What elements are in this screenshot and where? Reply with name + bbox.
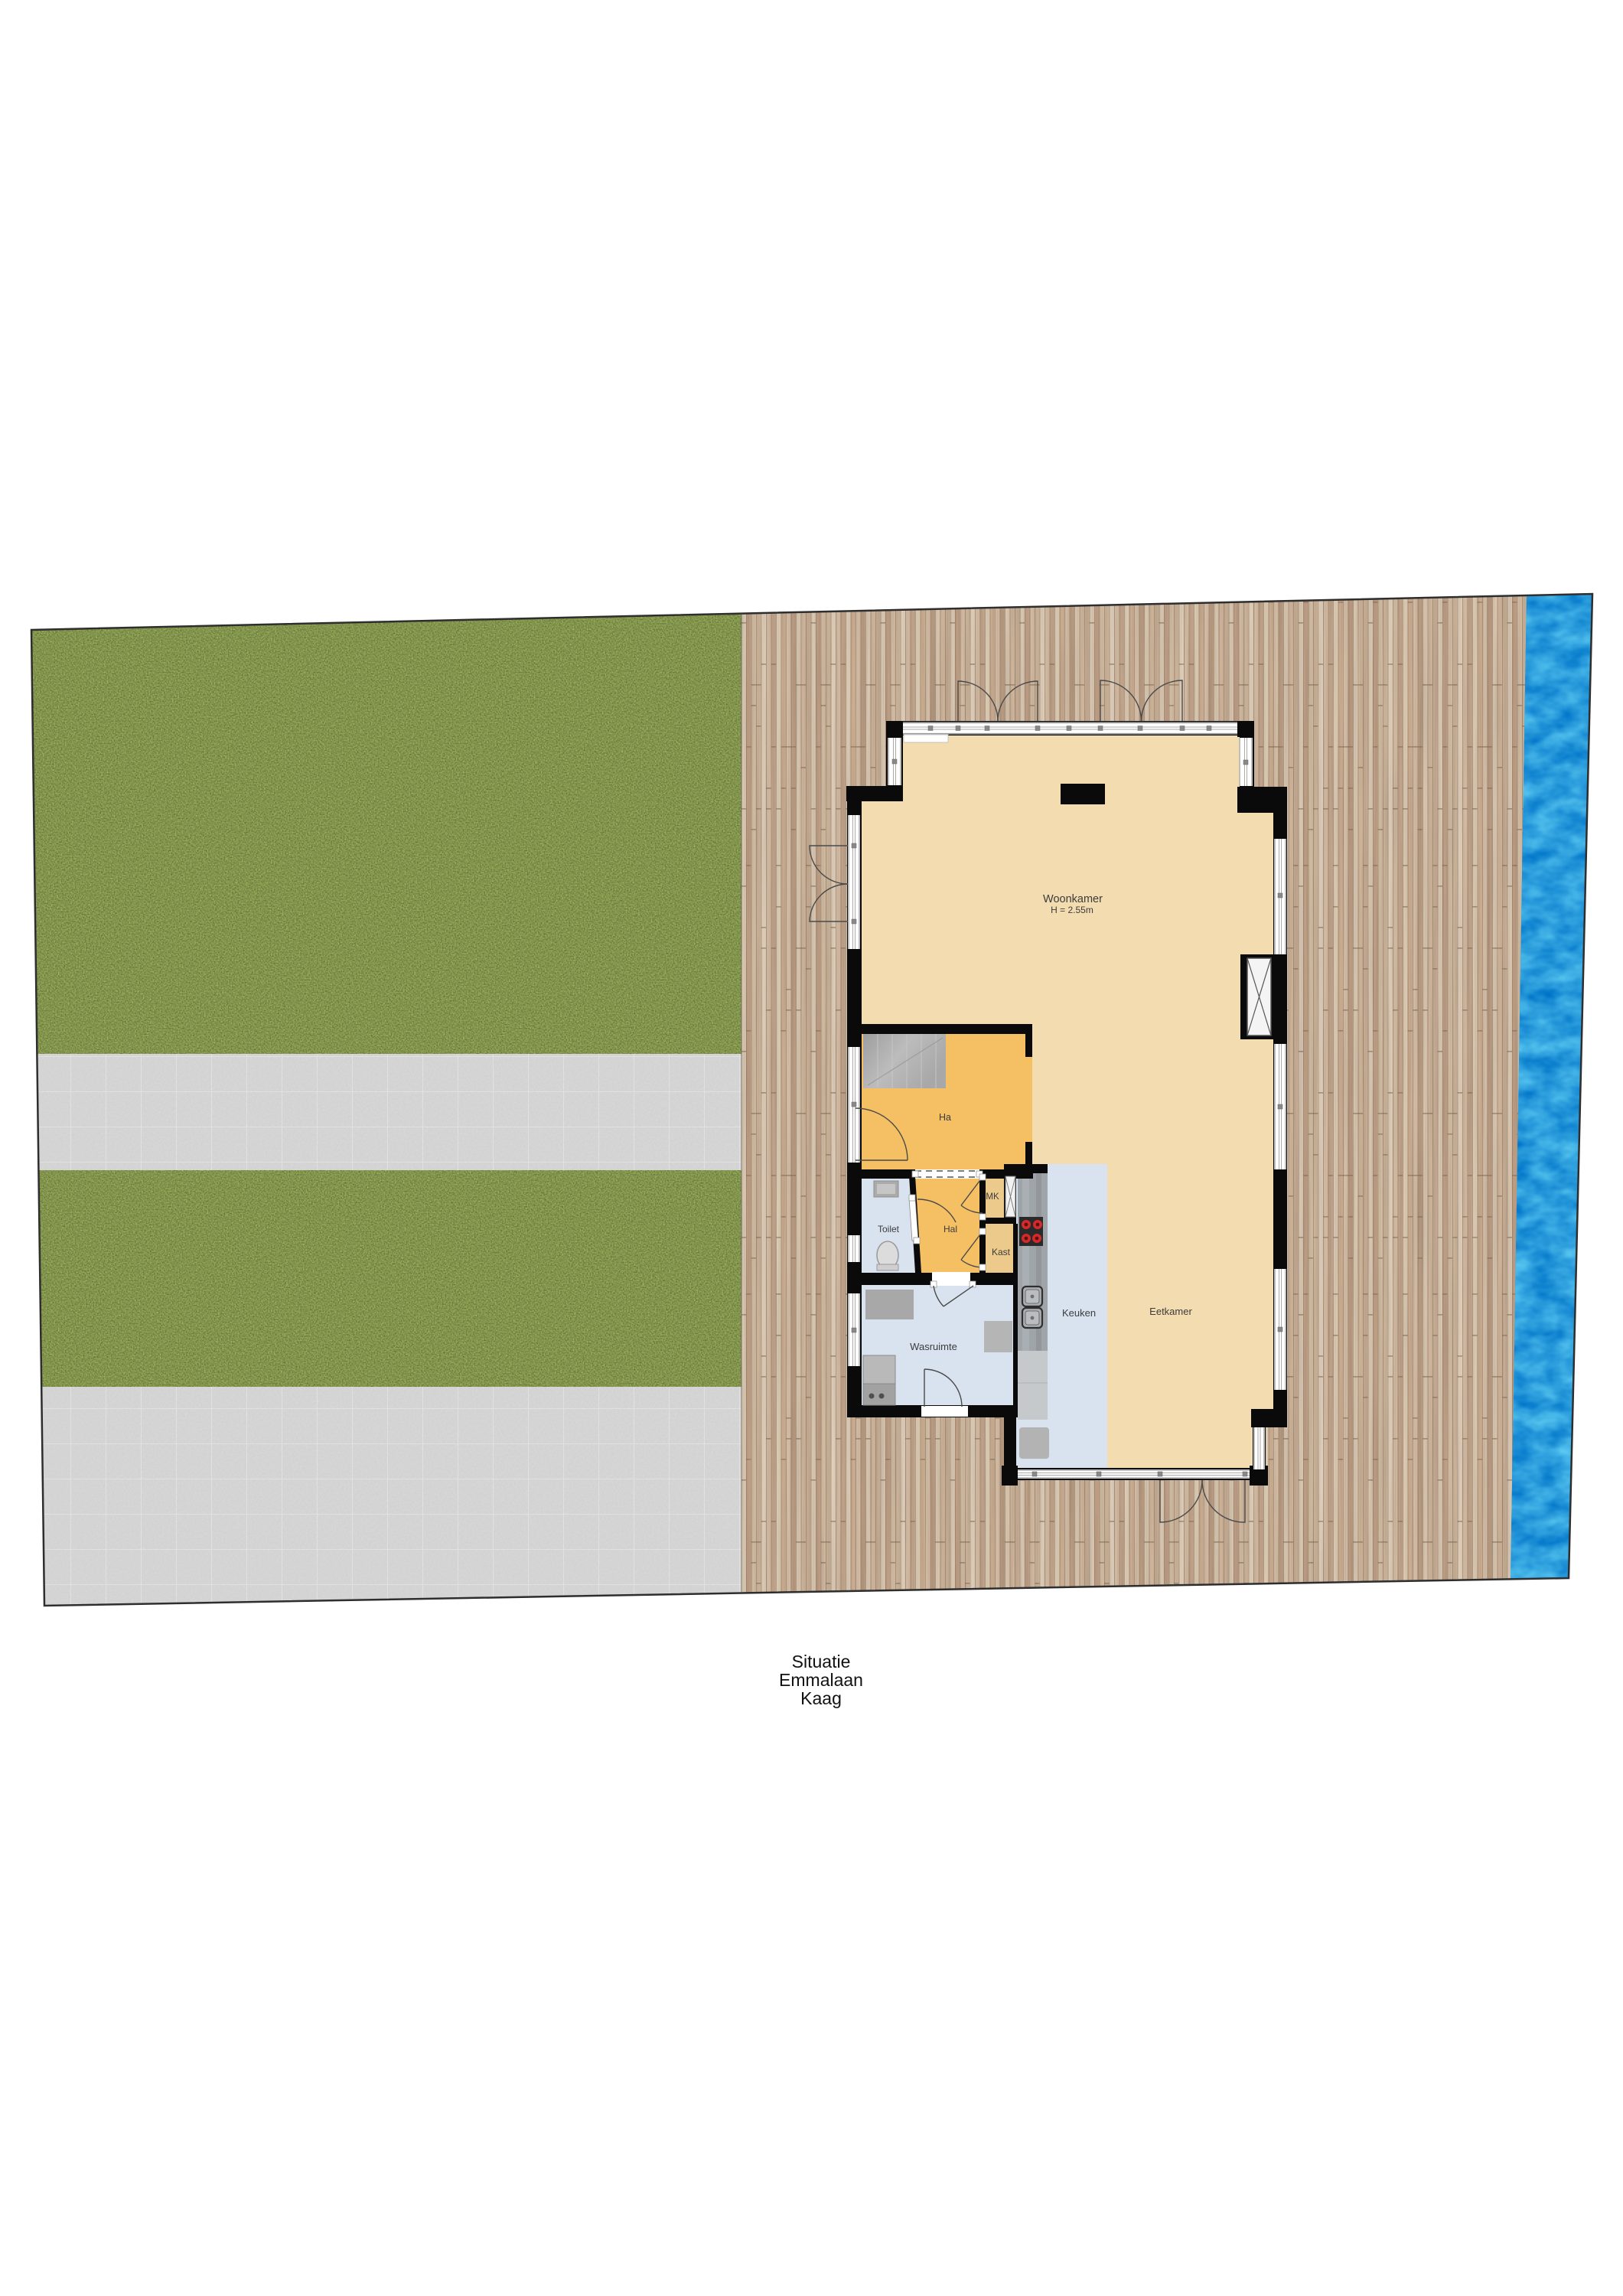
svg-text:Emmalaan: Emmalaan	[779, 1670, 863, 1690]
svg-text:Situatie: Situatie	[792, 1652, 851, 1671]
svg-text:Eetkamer: Eetkamer	[1149, 1306, 1192, 1317]
svg-text:Kaag: Kaag	[800, 1688, 842, 1708]
svg-text:Ha: Ha	[939, 1112, 951, 1123]
svg-text:Keuken: Keuken	[1062, 1307, 1096, 1319]
svg-text:MK: MK	[986, 1192, 999, 1202]
svg-text:Hal: Hal	[943, 1224, 957, 1234]
svg-text:Wasruimte: Wasruimte	[910, 1341, 957, 1352]
svg-text:Toilet: Toilet	[878, 1224, 900, 1234]
svg-text:H = 2.55m: H = 2.55m	[1051, 905, 1093, 915]
svg-text:Woonkamer: Woonkamer	[1043, 893, 1103, 905]
svg-text:Kast: Kast	[992, 1247, 1011, 1257]
